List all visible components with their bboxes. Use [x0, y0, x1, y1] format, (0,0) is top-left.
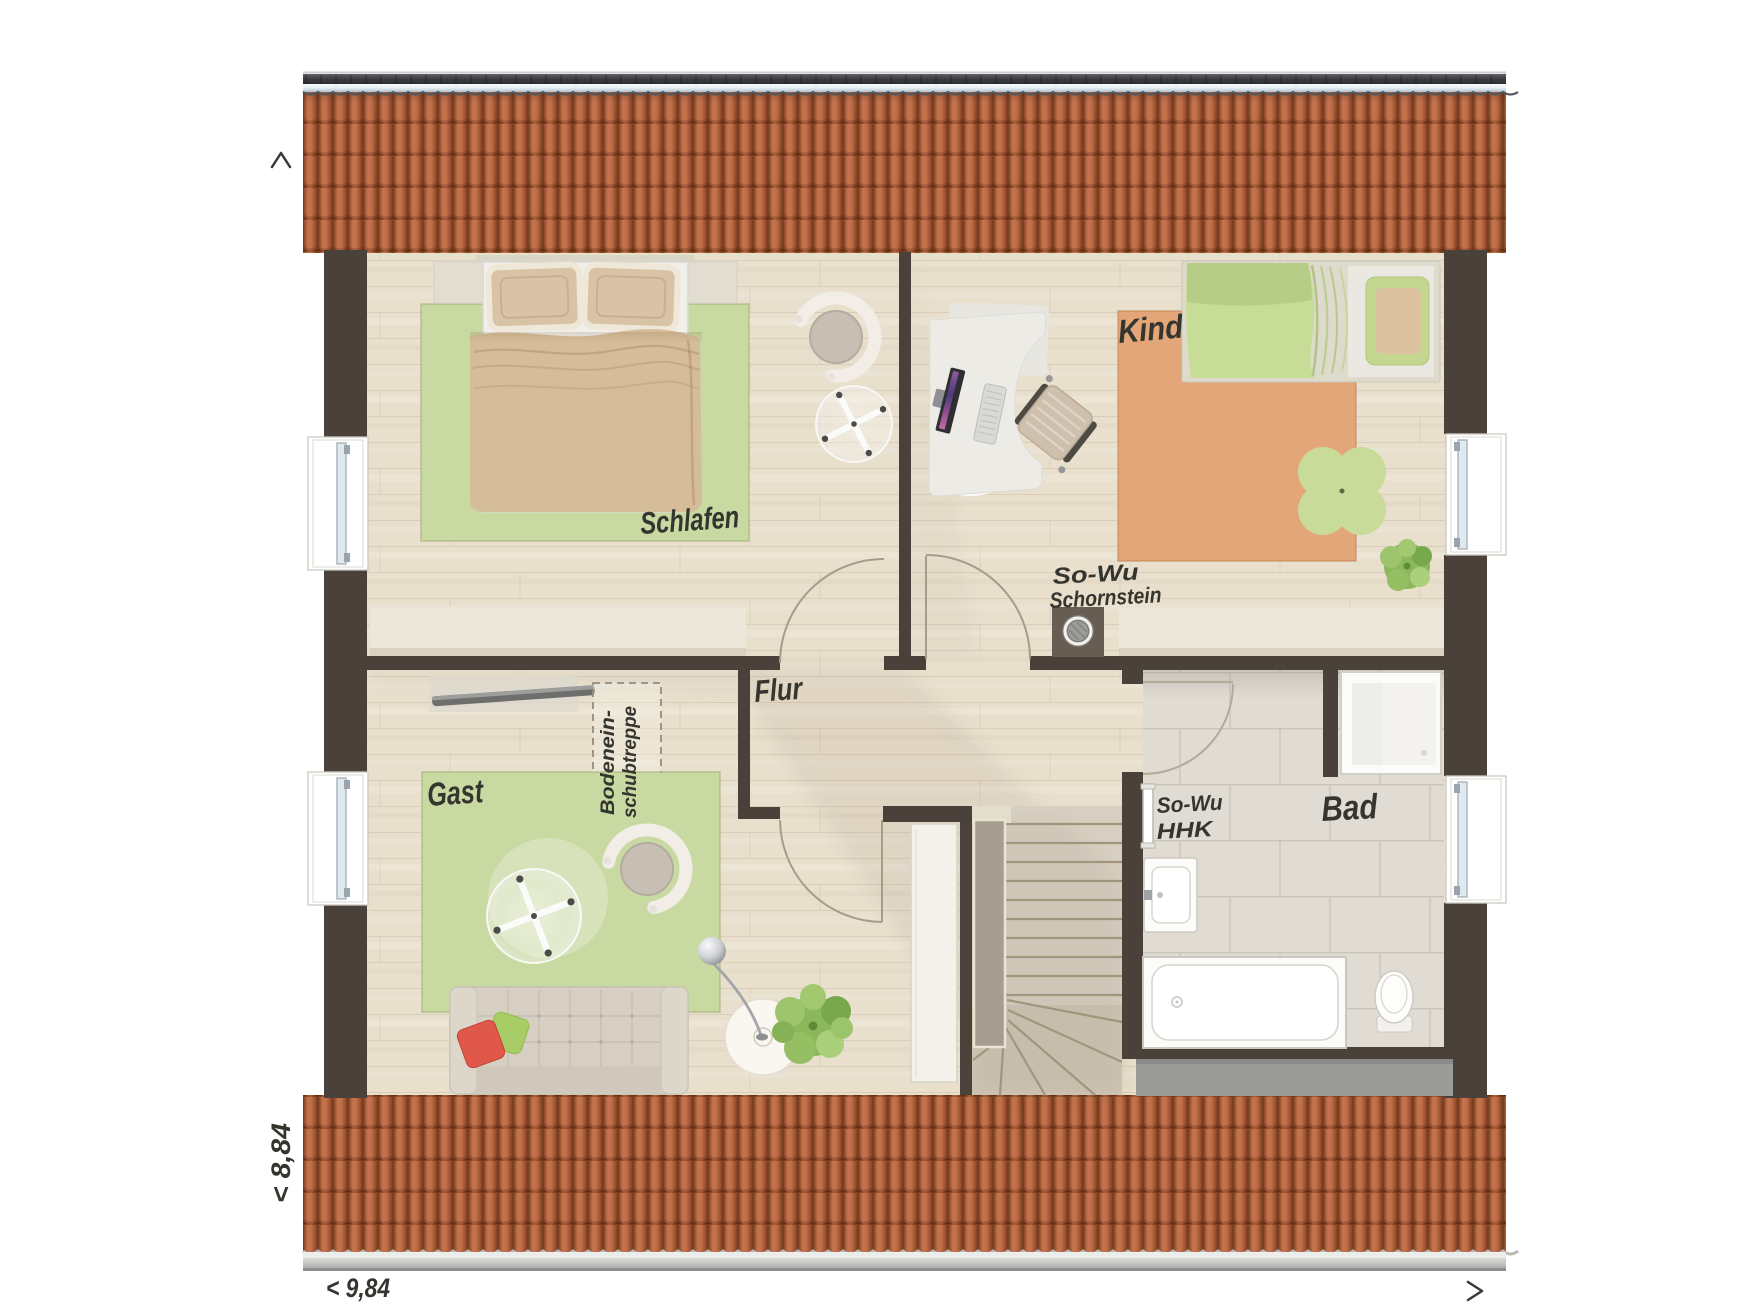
- svg-text:< 8,84: < 8,84: [266, 1123, 296, 1203]
- svg-text:Bodenein-: Bodenein-: [598, 710, 619, 815]
- svg-text:schubtreppe: schubtreppe: [620, 706, 641, 818]
- svg-text:< 9,84: < 9,84: [326, 1273, 390, 1303]
- svg-text:Gast: Gast: [426, 772, 486, 813]
- svg-text:Bad: Bad: [1320, 787, 1378, 829]
- svg-text:HHK: HHK: [1156, 816, 1216, 844]
- svg-text:Flur: Flur: [753, 671, 805, 709]
- svg-text:Kind: Kind: [1116, 307, 1185, 350]
- svg-text:Schlafen: Schlafen: [639, 499, 740, 541]
- svg-text:So-Wu: So-Wu: [1156, 790, 1224, 818]
